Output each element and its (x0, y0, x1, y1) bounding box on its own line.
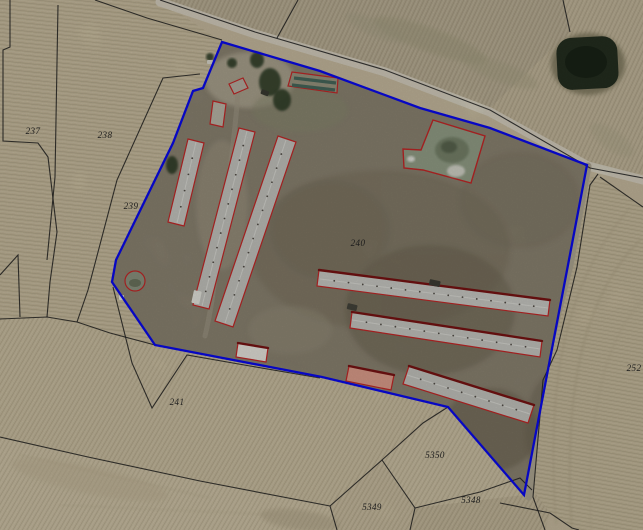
parcel-label-238: 238 (98, 130, 113, 140)
aerial-cadastral-map: 237238239240241535053495348252 (0, 0, 643, 530)
parcel-label-5348: 5348 (461, 495, 481, 505)
parcel-label-237: 237 (26, 126, 41, 136)
parcel-label-239: 239 (124, 201, 139, 211)
map-viewport[interactable]: 237238239240241535053495348252 (0, 0, 643, 530)
parcel-label-241: 241 (170, 397, 185, 407)
noise-overlay (0, 0, 643, 530)
parcel-label-240: 240 (351, 238, 366, 248)
parcel-label-5349: 5349 (362, 502, 382, 512)
parcel-label-252: 252 (627, 363, 642, 373)
parcel-label-5350: 5350 (425, 450, 445, 460)
